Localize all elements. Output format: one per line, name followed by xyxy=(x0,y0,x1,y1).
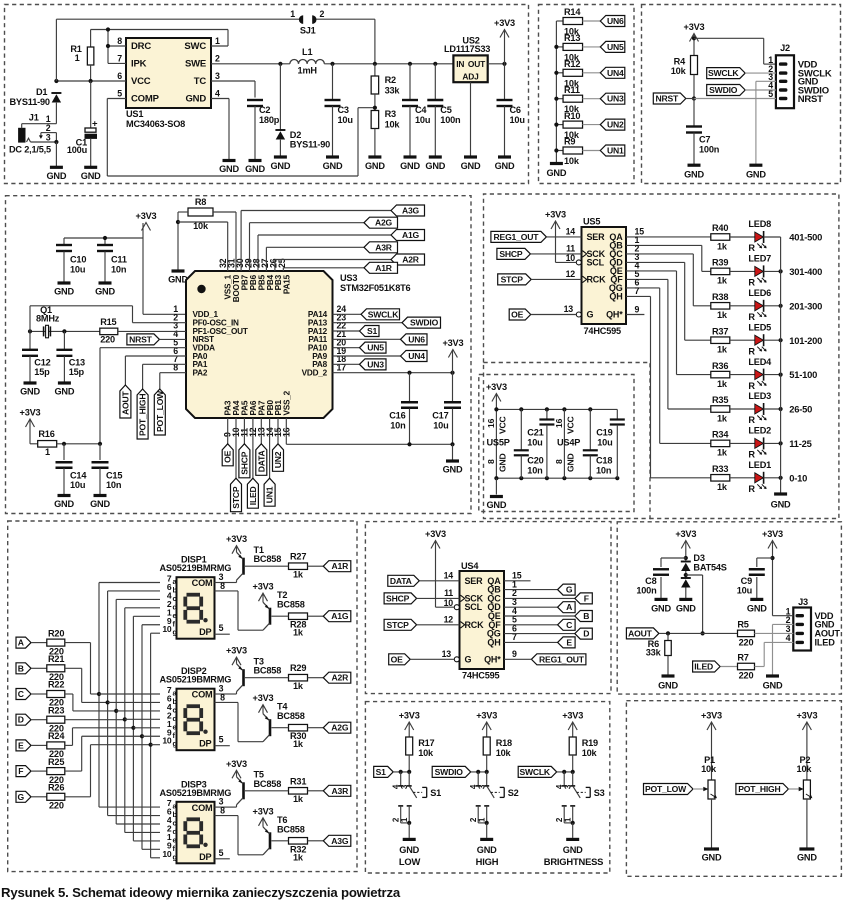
svg-text:F: F xyxy=(584,593,589,603)
svg-text:AOUT: AOUT xyxy=(120,391,130,415)
svg-text:10k: 10k xyxy=(418,748,434,758)
svg-text:+3V3: +3V3 xyxy=(545,210,566,220)
svg-text:D: D xyxy=(18,715,24,725)
svg-text:GND: GND xyxy=(771,500,791,510)
svg-text:74HC595: 74HC595 xyxy=(584,326,622,336)
svg-text:GND: GND xyxy=(676,604,696,614)
svg-text:10: 10 xyxy=(444,598,454,608)
svg-text:LED6: LED6 xyxy=(748,288,771,298)
svg-text:DP: DP xyxy=(199,627,211,637)
svg-text:C18: C18 xyxy=(596,456,612,466)
svg-text:GND: GND xyxy=(747,604,767,614)
svg-text:+3V3: +3V3 xyxy=(494,18,515,28)
svg-text:C15: C15 xyxy=(106,471,122,481)
svg-text:220: 220 xyxy=(100,335,115,345)
svg-text:1k: 1k xyxy=(293,681,304,691)
svg-text:STCP: STCP xyxy=(387,620,410,630)
svg-text:ILED: ILED xyxy=(694,662,713,672)
svg-text:1k: 1k xyxy=(717,310,728,320)
svg-text:5: 5 xyxy=(117,89,122,99)
svg-text:S1: S1 xyxy=(376,767,387,777)
svg-text:GND: GND xyxy=(746,170,766,180)
svg-text:OE: OE xyxy=(511,310,523,320)
svg-text:10k: 10k xyxy=(385,120,401,130)
svg-text:3: 3 xyxy=(400,784,409,789)
svg-text:R22: R22 xyxy=(48,680,64,690)
svg-text:QH*: QH* xyxy=(606,310,623,320)
svg-text:QH*: QH* xyxy=(484,654,501,664)
svg-text:10n: 10n xyxy=(111,265,127,275)
svg-text:DP: DP xyxy=(199,739,211,749)
svg-text:G: G xyxy=(465,654,472,664)
svg-text:C7: C7 xyxy=(699,135,710,145)
svg-text:8: 8 xyxy=(220,806,225,816)
svg-text:R9: R9 xyxy=(564,137,575,147)
svg-text:SWDIO: SWDIO xyxy=(709,85,738,95)
svg-text:10u: 10u xyxy=(70,480,85,490)
svg-text:g: g xyxy=(173,628,177,637)
svg-text:R24: R24 xyxy=(48,731,65,741)
svg-text:VCC: VCC xyxy=(497,416,507,434)
svg-text:R29: R29 xyxy=(290,663,306,673)
svg-text:A2R: A2R xyxy=(332,673,350,683)
svg-text:COM: COM xyxy=(192,578,213,588)
svg-text:3: 3 xyxy=(478,784,487,789)
svg-text:R11: R11 xyxy=(564,85,580,95)
svg-text:SHCP: SHCP xyxy=(239,451,249,475)
svg-text:J2: J2 xyxy=(780,43,790,53)
svg-text:R39: R39 xyxy=(712,258,728,268)
svg-text:1k: 1k xyxy=(717,276,728,286)
svg-text:C11: C11 xyxy=(111,255,127,265)
svg-text:GND: GND xyxy=(763,681,783,691)
svg-text:+3V3: +3V3 xyxy=(226,646,247,656)
svg-text:33k: 33k xyxy=(646,648,662,658)
svg-text:BYS11-90: BYS11-90 xyxy=(290,140,330,150)
svg-text:DRC: DRC xyxy=(131,41,151,52)
svg-text:REG1_OUT: REG1_OUT xyxy=(494,232,540,242)
svg-text:GND: GND xyxy=(185,94,206,105)
svg-text:1k: 1k xyxy=(717,448,728,458)
svg-text:301-400: 301-400 xyxy=(789,266,822,277)
svg-text:VCC: VCC xyxy=(565,416,575,434)
svg-text:ILED: ILED xyxy=(815,638,836,648)
svg-text:GND: GND xyxy=(563,845,583,855)
svg-text:C2: C2 xyxy=(259,105,270,115)
svg-text:14: 14 xyxy=(566,226,576,236)
svg-text:C21: C21 xyxy=(527,428,543,438)
svg-text:10k: 10k xyxy=(701,764,717,774)
svg-text:OUT: OUT xyxy=(468,59,486,69)
svg-text:POT_HIGH: POT_HIGH xyxy=(138,394,148,436)
svg-text:16: 16 xyxy=(554,418,564,428)
svg-text:R7: R7 xyxy=(737,653,748,663)
svg-text:+3V3: +3V3 xyxy=(442,338,463,348)
svg-text:5: 5 xyxy=(768,89,773,99)
svg-text:10u: 10u xyxy=(527,438,542,448)
svg-text:SWCLK: SWCLK xyxy=(368,309,399,319)
svg-text:R8: R8 xyxy=(195,197,206,207)
svg-text:R17: R17 xyxy=(418,738,434,748)
svg-text:Rysunek 5. Schemat ideowy mier: Rysunek 5. Schemat ideowy miernika zanie… xyxy=(1,885,401,900)
svg-text:+3V3: +3V3 xyxy=(762,529,783,539)
svg-text:COM: COM xyxy=(192,690,213,700)
svg-text:VDD_2: VDD_2 xyxy=(302,369,328,378)
svg-text:1: 1 xyxy=(45,447,50,457)
svg-text:LED3: LED3 xyxy=(748,391,771,401)
svg-text:C13: C13 xyxy=(69,358,85,368)
svg-text:1k: 1k xyxy=(293,852,304,862)
svg-text:10n: 10n xyxy=(527,466,543,476)
svg-text:R4: R4 xyxy=(674,57,686,67)
svg-text:+3V3: +3V3 xyxy=(253,582,274,592)
svg-text:SWC: SWC xyxy=(184,41,206,52)
svg-text:BC858: BC858 xyxy=(254,666,282,676)
svg-text:10: 10 xyxy=(162,849,172,859)
svg-text:LED1: LED1 xyxy=(748,460,771,470)
svg-text:UN2: UN2 xyxy=(607,120,624,130)
svg-text:R: R xyxy=(748,450,755,460)
svg-text:C20: C20 xyxy=(527,456,543,466)
svg-text:R: R xyxy=(748,243,755,253)
svg-text:12: 12 xyxy=(444,614,454,624)
svg-text:GND: GND xyxy=(95,287,115,297)
svg-text:US1: US1 xyxy=(126,109,143,119)
svg-text:8: 8 xyxy=(486,459,496,464)
svg-text:A3G: A3G xyxy=(402,206,420,216)
svg-text:100u: 100u xyxy=(67,145,87,155)
svg-text:+3V3: +3V3 xyxy=(253,693,274,703)
svg-text:UN5: UN5 xyxy=(607,42,624,52)
svg-text:BC858: BC858 xyxy=(254,554,282,564)
svg-text:SER: SER xyxy=(587,232,606,242)
svg-text:+3V3: +3V3 xyxy=(796,711,817,721)
svg-text:VCC: VCC xyxy=(131,76,151,87)
svg-text:+3V3: +3V3 xyxy=(136,211,157,221)
svg-text:SWCLK: SWCLK xyxy=(708,68,739,78)
svg-text:R13: R13 xyxy=(564,33,580,43)
svg-text:UN6: UN6 xyxy=(408,334,425,344)
svg-text:1k: 1k xyxy=(293,794,304,804)
svg-text:A2G: A2G xyxy=(375,218,393,228)
svg-text:A2G: A2G xyxy=(331,723,349,733)
svg-text:L1: L1 xyxy=(302,47,312,57)
svg-text:16: 16 xyxy=(486,418,496,428)
svg-text:5: 5 xyxy=(219,848,224,858)
svg-text:POT_LOW: POT_LOW xyxy=(155,390,165,432)
svg-text:LED7: LED7 xyxy=(748,254,771,264)
svg-text:GND: GND xyxy=(323,161,343,171)
svg-text:g: g xyxy=(173,852,177,861)
svg-text:DP: DP xyxy=(199,852,211,862)
svg-text:A: A xyxy=(18,638,24,648)
svg-text:+3V3: +3V3 xyxy=(701,711,722,721)
svg-text:ILED: ILED xyxy=(248,486,258,505)
svg-text:UN3: UN3 xyxy=(367,359,384,369)
svg-text:BYS11-90: BYS11-90 xyxy=(10,97,50,107)
svg-text:11-25: 11-25 xyxy=(789,438,811,449)
svg-text:R: R xyxy=(748,278,755,288)
svg-text:B: B xyxy=(18,663,24,673)
svg-text:10: 10 xyxy=(162,624,172,634)
svg-text:R37: R37 xyxy=(712,326,728,336)
svg-text:A3G: A3G xyxy=(331,836,349,846)
svg-text:8MHz: 8MHz xyxy=(36,314,60,324)
svg-text:SCL: SCL xyxy=(465,602,483,612)
svg-text:R14: R14 xyxy=(564,7,581,17)
svg-text:15p: 15p xyxy=(69,367,85,377)
svg-text:DATA: DATA xyxy=(390,576,412,586)
svg-text:1k: 1k xyxy=(717,379,728,389)
svg-text:GND: GND xyxy=(702,853,722,863)
svg-text:13: 13 xyxy=(564,304,574,314)
svg-text:GND: GND xyxy=(658,681,678,691)
svg-text:GND: GND xyxy=(81,171,101,181)
svg-text:C10: C10 xyxy=(70,255,86,265)
svg-text:R36: R36 xyxy=(712,361,728,371)
svg-text:R19: R19 xyxy=(582,738,598,748)
svg-text:26-50: 26-50 xyxy=(789,404,812,415)
svg-text:SWE: SWE xyxy=(185,59,206,70)
svg-text:C4: C4 xyxy=(415,105,427,115)
svg-text:1k: 1k xyxy=(293,628,304,638)
svg-text:C3: C3 xyxy=(338,105,349,115)
svg-text:OE: OE xyxy=(391,654,403,664)
svg-text:R20: R20 xyxy=(48,628,64,638)
svg-text:G: G xyxy=(18,792,25,802)
svg-text:9: 9 xyxy=(512,649,517,659)
svg-text:R38: R38 xyxy=(712,292,728,302)
svg-text:180p: 180p xyxy=(259,115,280,125)
svg-text:10n: 10n xyxy=(390,421,406,431)
svg-text:GND: GND xyxy=(46,171,66,181)
svg-text:10u: 10u xyxy=(433,421,448,431)
svg-text:10k: 10k xyxy=(496,748,512,758)
svg-text:10k: 10k xyxy=(671,66,687,76)
svg-text:R: R xyxy=(748,346,755,356)
svg-text:GND: GND xyxy=(365,161,385,171)
svg-text:10u: 10u xyxy=(597,438,612,448)
svg-text:+3V3: +3V3 xyxy=(253,806,274,816)
svg-text:UN3: UN3 xyxy=(607,94,624,104)
svg-text:E: E xyxy=(18,740,24,750)
svg-text:UN4: UN4 xyxy=(607,68,624,78)
svg-text:POT_HIGH: POT_HIGH xyxy=(738,784,780,794)
svg-text:HIGH: HIGH xyxy=(476,856,499,867)
svg-text:STCP: STCP xyxy=(231,486,241,509)
svg-text:US4: US4 xyxy=(461,561,479,571)
svg-text:R12: R12 xyxy=(564,59,580,69)
svg-text:+3V3: +3V3 xyxy=(486,382,507,392)
svg-text:LED8: LED8 xyxy=(748,219,771,229)
svg-text:NRST: NRST xyxy=(656,94,680,104)
svg-text:A1R: A1R xyxy=(375,263,393,273)
svg-text:10u: 10u xyxy=(338,115,353,125)
svg-text:11: 11 xyxy=(566,243,575,253)
svg-text:GND: GND xyxy=(495,161,515,171)
svg-text:13: 13 xyxy=(442,649,452,659)
svg-text:LD1117S33: LD1117S33 xyxy=(444,44,490,54)
svg-text:SHCP: SHCP xyxy=(386,593,410,603)
svg-text:UN4: UN4 xyxy=(408,351,425,361)
svg-text:VSS_2: VSS_2 xyxy=(283,390,292,415)
svg-text:220: 220 xyxy=(739,638,754,648)
svg-text:G: G xyxy=(587,310,594,320)
svg-text:2: 2 xyxy=(46,123,51,133)
svg-text:IN: IN xyxy=(456,59,464,69)
svg-text:1k: 1k xyxy=(717,482,728,492)
svg-text:1: 1 xyxy=(290,9,295,19)
svg-text:51-100: 51-100 xyxy=(789,369,817,380)
svg-text:S1: S1 xyxy=(430,788,441,798)
svg-text:12: 12 xyxy=(566,269,576,279)
svg-text:MC34063-SO8: MC34063-SO8 xyxy=(126,119,185,129)
svg-text:GND: GND xyxy=(270,161,290,171)
svg-text:1k: 1k xyxy=(293,569,304,579)
svg-text:A: A xyxy=(566,602,572,612)
svg-text:LED4: LED4 xyxy=(748,357,772,367)
svg-text:B: B xyxy=(583,611,589,621)
svg-text:+3V3: +3V3 xyxy=(226,534,247,544)
svg-text:3: 3 xyxy=(215,71,220,81)
svg-text:GND: GND xyxy=(565,454,575,473)
svg-text:1k: 1k xyxy=(717,413,728,423)
svg-text:GND: GND xyxy=(399,845,419,855)
svg-text:STCP: STCP xyxy=(501,274,524,284)
svg-text:C: C xyxy=(566,620,572,630)
svg-text:74HC595: 74HC595 xyxy=(462,671,500,681)
svg-text:D1: D1 xyxy=(36,87,47,97)
svg-text:J1: J1 xyxy=(29,113,39,123)
svg-text:C19: C19 xyxy=(596,428,612,438)
svg-text:DATA: DATA xyxy=(256,451,266,473)
svg-text:1k: 1k xyxy=(717,241,728,251)
svg-text:UN1: UN1 xyxy=(265,486,275,503)
svg-text:10n: 10n xyxy=(106,480,122,490)
svg-text:BC858: BC858 xyxy=(277,824,305,834)
svg-text:0-10: 0-10 xyxy=(789,472,807,483)
svg-text:E: E xyxy=(566,637,572,647)
svg-text:IPK: IPK xyxy=(131,59,147,70)
svg-text:R40: R40 xyxy=(712,223,728,233)
svg-text:C: C xyxy=(18,689,24,699)
svg-text:R26: R26 xyxy=(48,783,64,793)
svg-text:GND: GND xyxy=(54,387,74,397)
svg-text:A3R: A3R xyxy=(332,786,350,796)
svg-text:T6: T6 xyxy=(277,815,287,825)
svg-text:C9: C9 xyxy=(741,576,752,586)
svg-text:10u: 10u xyxy=(70,265,85,275)
svg-text:SCL: SCL xyxy=(587,257,605,267)
svg-text:+3V3: +3V3 xyxy=(684,22,705,32)
svg-text:GND: GND xyxy=(477,845,497,855)
svg-text:GND: GND xyxy=(54,287,74,297)
svg-text:UN6: UN6 xyxy=(607,16,624,26)
svg-text:US3: US3 xyxy=(340,273,357,283)
svg-text:+3V3: +3V3 xyxy=(562,711,583,721)
svg-text:C6: C6 xyxy=(510,105,521,115)
svg-text:9: 9 xyxy=(635,304,640,314)
svg-text:C5: C5 xyxy=(440,105,451,115)
svg-text:+3V3: +3V3 xyxy=(675,529,696,539)
svg-text:SWDIO: SWDIO xyxy=(435,767,464,777)
svg-text:T2: T2 xyxy=(277,590,287,600)
svg-text:S1: S1 xyxy=(367,326,378,336)
svg-text:R33: R33 xyxy=(712,464,728,474)
svg-text:1: 1 xyxy=(75,53,80,63)
svg-text:11: 11 xyxy=(444,588,453,598)
svg-text:G: G xyxy=(566,585,573,595)
svg-text:NRST: NRST xyxy=(129,334,153,344)
svg-text:GND: GND xyxy=(461,161,481,171)
svg-text:GND: GND xyxy=(443,465,463,475)
svg-text:1mH: 1mH xyxy=(298,65,318,75)
svg-text:R25: R25 xyxy=(48,757,64,767)
svg-text:SER: SER xyxy=(465,576,484,586)
svg-text:REG1_OUT: REG1_OUT xyxy=(539,654,585,664)
svg-text:R16: R16 xyxy=(38,429,54,439)
svg-text:GND: GND xyxy=(684,170,704,180)
svg-text:GND: GND xyxy=(797,853,817,863)
svg-text:LED2: LED2 xyxy=(748,426,771,436)
svg-text:R: R xyxy=(748,484,755,494)
svg-text:6: 6 xyxy=(117,71,122,81)
svg-text:A1R: A1R xyxy=(332,561,350,571)
svg-text:R10: R10 xyxy=(564,111,580,121)
svg-text:1k: 1k xyxy=(717,345,728,355)
svg-text:UN2: UN2 xyxy=(273,451,283,468)
svg-text:R21: R21 xyxy=(48,654,64,664)
svg-text:GND: GND xyxy=(90,499,110,509)
svg-text:GND: GND xyxy=(425,161,445,171)
svg-text:PA2: PA2 xyxy=(193,369,208,378)
svg-text:A3R: A3R xyxy=(375,242,393,252)
svg-text:STM32F051K8T6: STM32F051K8T6 xyxy=(340,283,411,293)
svg-text:220: 220 xyxy=(49,801,64,811)
svg-text:RCK: RCK xyxy=(587,274,607,284)
svg-text:1k: 1k xyxy=(293,739,304,749)
svg-text:QH: QH xyxy=(609,291,622,301)
svg-text:DC 2,1/5,5: DC 2,1/5,5 xyxy=(9,145,51,155)
svg-text:SWDIO: SWDIO xyxy=(410,318,439,328)
svg-text:C17: C17 xyxy=(432,411,448,421)
svg-text:F: F xyxy=(18,766,23,776)
svg-text:S3: S3 xyxy=(594,788,605,798)
svg-text:A1G: A1G xyxy=(331,611,349,621)
svg-text:GND: GND xyxy=(546,168,566,178)
svg-text:SJ1: SJ1 xyxy=(300,26,316,36)
svg-text:TC: TC xyxy=(194,76,207,87)
svg-text:AOUT: AOUT xyxy=(628,628,652,638)
svg-text:100n: 100n xyxy=(699,145,720,155)
svg-text:GND: GND xyxy=(20,387,40,397)
svg-text:R15: R15 xyxy=(100,317,116,327)
svg-text:COM: COM xyxy=(192,803,213,813)
svg-text:R35: R35 xyxy=(712,395,728,405)
svg-text:GND: GND xyxy=(245,164,265,174)
svg-text:C16: C16 xyxy=(389,411,405,421)
svg-text:BC858: BC858 xyxy=(277,600,305,610)
svg-text:GND: GND xyxy=(400,161,420,171)
svg-text:8: 8 xyxy=(220,693,225,703)
svg-text:SWCLK: SWCLK xyxy=(519,767,550,777)
svg-text:BRIGHTNESS: BRIGHTNESS xyxy=(544,856,603,867)
svg-text:J3: J3 xyxy=(798,597,808,607)
svg-text:US5: US5 xyxy=(583,217,600,227)
svg-text:7: 7 xyxy=(635,286,640,296)
svg-text:S2: S2 xyxy=(508,788,519,798)
svg-text:R2: R2 xyxy=(385,75,396,85)
